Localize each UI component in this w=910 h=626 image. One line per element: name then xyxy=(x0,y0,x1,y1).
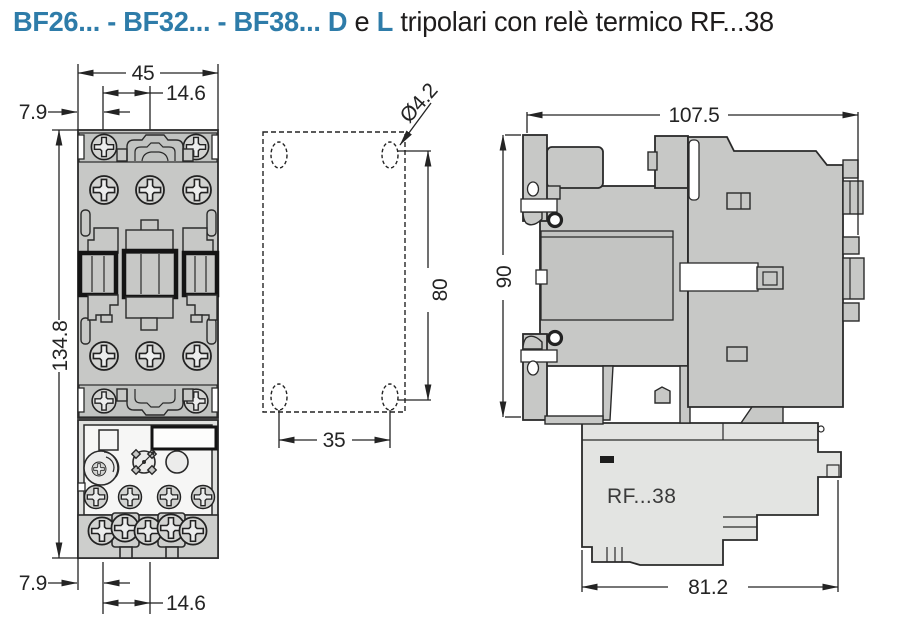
adjustment-dial xyxy=(84,451,119,485)
thermal-relay-front xyxy=(78,420,218,558)
reset-button xyxy=(166,451,188,473)
dim-pitch-bottom-label: 14.6 xyxy=(166,592,206,615)
dim-relay-depth-label: 81.2 xyxy=(688,576,728,599)
front-view: 45 14.6 7.9 134.8 7.9 14.6 xyxy=(19,62,218,615)
dim-hole-diameter-label: Ø4.2 xyxy=(396,79,443,127)
dim-side-height-label: 90 xyxy=(493,266,516,289)
label-window xyxy=(152,427,216,449)
contactor-side-body xyxy=(521,135,864,424)
dim-pitch-top-label: 14.6 xyxy=(166,82,206,105)
phillips-screw-icon xyxy=(90,342,118,370)
mounting-hole xyxy=(271,142,287,168)
selector-knob xyxy=(132,450,156,474)
phillips-screw-icon xyxy=(158,486,181,509)
phillips-screw-icon xyxy=(192,486,215,509)
phillips-screw-icon xyxy=(119,486,142,509)
dim-horizontal-spacing-label: 35 xyxy=(323,429,346,452)
dim-width-label: 45 xyxy=(132,62,155,85)
technical-drawing: 45 14.6 7.9 134.8 7.9 14.6 xyxy=(0,0,910,626)
thermal-relay-side: RF...38 xyxy=(582,423,841,565)
mounting-view-dimensions: Ø4.2 80 35 xyxy=(279,79,452,452)
phillips-screw-icon xyxy=(183,342,211,370)
mounting-view: Ø4.2 80 35 xyxy=(263,79,452,452)
phillips-screw-icon xyxy=(136,176,164,204)
dim-edge-bottom-label: 7.9 xyxy=(19,572,47,595)
dim-vertical-spacing-label: 80 xyxy=(429,279,452,302)
phillips-screw-icon xyxy=(179,517,206,544)
datasheet-page: BF26... - BF32... - BF38...DeLtripolari … xyxy=(0,0,910,626)
mounting-hole xyxy=(382,142,398,168)
phillips-screw-icon xyxy=(92,389,116,413)
mounting-footprint xyxy=(263,132,405,412)
phillips-screw-icon xyxy=(85,486,108,509)
test-button xyxy=(99,430,118,450)
dim-edge-top-label: 7.9 xyxy=(19,101,47,124)
relay-label: RF...38 xyxy=(607,485,676,508)
contactor-front-body xyxy=(78,130,218,418)
side-view: RF...38 xyxy=(493,104,864,599)
phillips-screw-icon xyxy=(136,342,164,370)
vent-slot xyxy=(600,456,614,463)
phillips-screw-icon xyxy=(183,176,211,204)
phillips-screw-icon xyxy=(91,134,116,159)
dim-height-label: 134.8 xyxy=(49,320,72,371)
mounting-hole xyxy=(271,384,287,410)
mounting-hole xyxy=(382,384,398,410)
dim-depth-label: 107.5 xyxy=(668,104,719,127)
phillips-screw-icon xyxy=(90,176,118,204)
